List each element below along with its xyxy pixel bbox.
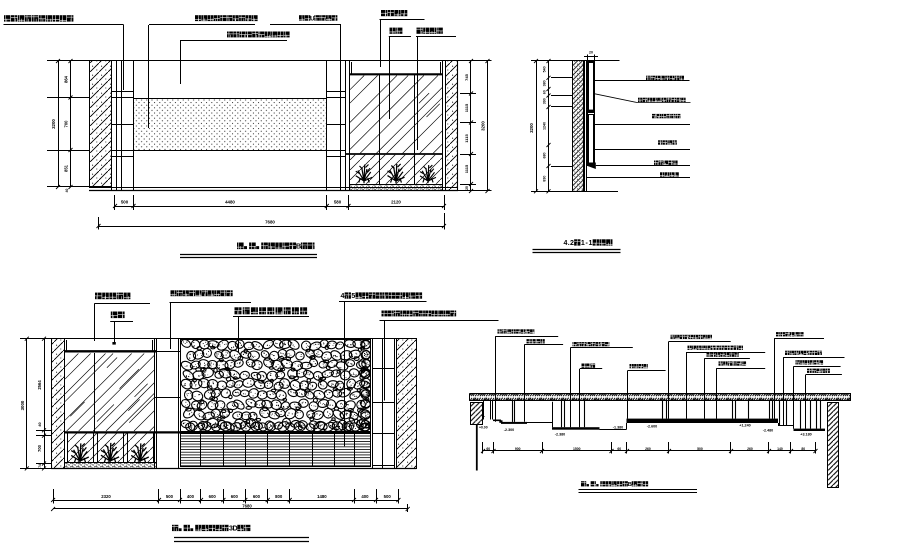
svg-text:7680: 7680 (242, 503, 252, 508)
svg-text:-2.380: -2.380 (555, 433, 565, 437)
svg-text:1500: 1500 (573, 447, 581, 451)
svg-text:60: 60 (486, 447, 490, 451)
svg-text:+1.240: +1.240 (739, 424, 750, 428)
svg-text:20: 20 (589, 51, 593, 55)
svg-text:4480: 4480 (225, 200, 235, 205)
svg-text:1115: 1115 (464, 164, 469, 173)
svg-text:3200: 3200 (481, 121, 486, 131)
svg-text:400: 400 (361, 494, 369, 499)
svg-text:260: 260 (747, 447, 753, 451)
svg-text:60: 60 (617, 447, 621, 451)
svg-text:3000: 3000 (20, 400, 25, 410)
svg-text:2564: 2564 (37, 380, 42, 390)
svg-text:5: 5 (351, 293, 355, 300)
svg-text:25: 25 (465, 186, 469, 190)
svg-text:B: B (296, 242, 301, 251)
svg-text:1115: 1115 (464, 134, 469, 143)
svg-text:580: 580 (334, 200, 342, 205)
svg-text:1115: 1115 (464, 103, 469, 112)
svg-text:830: 830 (543, 176, 547, 182)
svg-text:680: 680 (543, 153, 547, 159)
svg-text:500: 500 (166, 494, 174, 499)
svg-text:500: 500 (697, 447, 703, 451)
svg-text:380: 380 (543, 80, 547, 86)
svg-text:140: 140 (777, 447, 783, 451)
svg-text:700: 700 (64, 120, 69, 128)
svg-text:260: 260 (645, 447, 651, 451)
svg-text:500: 500 (384, 494, 392, 499)
svg-text:-2.600: -2.600 (647, 424, 657, 428)
svg-text:2320: 2320 (101, 494, 111, 499)
svg-text:745: 745 (464, 73, 469, 80)
svg-text:D: D (233, 526, 238, 533)
svg-text:700: 700 (37, 444, 42, 452)
svg-text:7680: 7680 (265, 220, 275, 225)
svg-text:500: 500 (121, 200, 129, 205)
svg-text:864: 864 (64, 75, 69, 83)
svg-text:600: 600 (253, 494, 261, 499)
svg-text:900: 900 (515, 447, 521, 451)
svg-text:600: 600 (209, 494, 217, 499)
svg-text:40: 40 (38, 422, 42, 426)
svg-text:-1.380: -1.380 (613, 425, 623, 429)
svg-text:74: 74 (38, 464, 42, 468)
svg-text:1: 1 (588, 240, 592, 247)
svg-text:60: 60 (543, 90, 547, 94)
svg-text:1: 1 (581, 240, 585, 247)
svg-text:2120: 2120 (391, 200, 401, 205)
svg-text:3200: 3200 (51, 119, 56, 129)
svg-text:B: B (628, 482, 632, 488)
svg-text:400: 400 (187, 494, 195, 499)
svg-text:540: 540 (543, 66, 547, 72)
svg-text:-2.480: -2.480 (763, 428, 773, 432)
svg-text:40: 40 (65, 189, 69, 193)
svg-text:-2.300: -2.300 (504, 428, 514, 432)
svg-text:4: 4 (340, 293, 344, 300)
svg-text:+0.00: +0.00 (479, 425, 488, 429)
svg-text:390: 390 (543, 98, 547, 104)
svg-text:80: 80 (801, 447, 805, 451)
svg-text:1240: 1240 (543, 122, 547, 130)
svg-text:800: 800 (275, 494, 283, 499)
svg-text:851: 851 (64, 164, 69, 172)
svg-text:+3.180: +3.180 (800, 433, 811, 437)
svg-text:2: 2 (570, 240, 574, 247)
svg-text:600: 600 (231, 494, 239, 499)
svg-text:3200: 3200 (529, 123, 534, 133)
svg-text:1480: 1480 (317, 494, 327, 499)
